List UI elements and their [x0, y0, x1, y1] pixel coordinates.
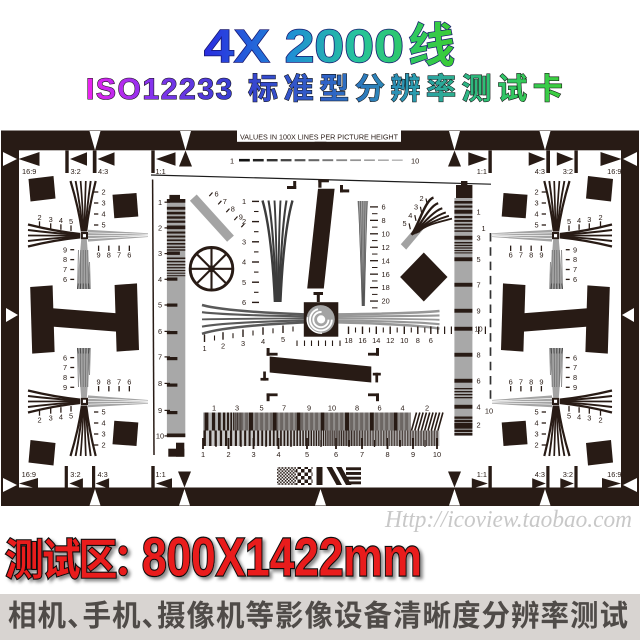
svg-text:9: 9 — [307, 403, 311, 412]
svg-text:5: 5 — [281, 335, 285, 344]
svg-text:4: 4 — [577, 216, 581, 225]
svg-text:4: 4 — [276, 450, 280, 459]
svg-text:4: 4 — [261, 337, 265, 346]
svg-text:2: 2 — [101, 188, 105, 197]
svg-text:10: 10 — [485, 407, 493, 416]
svg-text:5: 5 — [101, 408, 105, 417]
svg-text:1: 1 — [476, 208, 480, 217]
svg-text:10: 10 — [411, 156, 419, 165]
svg-text:12: 12 — [386, 336, 394, 345]
svg-text:9: 9 — [97, 378, 101, 387]
svg-text:2: 2 — [37, 213, 41, 222]
svg-text:7: 7 — [223, 197, 227, 206]
svg-text:18: 18 — [382, 283, 390, 292]
svg-text:8: 8 — [382, 216, 386, 225]
svg-text:8: 8 — [107, 378, 111, 387]
svg-text:4:3: 4:3 — [98, 470, 108, 479]
svg-text:20: 20 — [382, 297, 390, 306]
svg-text:6: 6 — [63, 353, 67, 362]
svg-text:3: 3 — [534, 430, 538, 439]
svg-text:4: 4 — [158, 275, 162, 284]
svg-text:8: 8 — [416, 336, 420, 345]
svg-text:1: 1 — [158, 198, 162, 207]
svg-text:3: 3 — [587, 215, 591, 224]
svg-text:6: 6 — [214, 189, 218, 198]
svg-text:3: 3 — [242, 237, 246, 246]
svg-text:1:1: 1:1 — [477, 167, 487, 176]
svg-text:4: 4 — [400, 403, 404, 412]
svg-text:14: 14 — [372, 336, 380, 345]
svg-text:16:9: 16:9 — [607, 470, 621, 479]
svg-text:8: 8 — [529, 378, 533, 387]
svg-text:2: 2 — [101, 441, 105, 450]
svg-text:10: 10 — [400, 336, 408, 345]
svg-text:1: 1 — [481, 224, 485, 233]
svg-text:4: 4 — [59, 216, 63, 225]
svg-text:16: 16 — [358, 336, 366, 345]
svg-text:16:9: 16:9 — [22, 167, 36, 176]
svg-text:10: 10 — [328, 403, 336, 412]
svg-text:1: 1 — [242, 197, 246, 206]
svg-text:16:9: 16:9 — [607, 167, 621, 176]
svg-text:2: 2 — [534, 441, 538, 450]
svg-text:8: 8 — [385, 450, 389, 459]
svg-text:12: 12 — [382, 243, 390, 252]
svg-text:2: 2 — [37, 416, 41, 425]
svg-text:6: 6 — [573, 275, 577, 284]
svg-text:8: 8 — [573, 373, 577, 382]
svg-text:3: 3 — [476, 234, 480, 243]
svg-text:3: 3 — [534, 199, 538, 208]
svg-text:10: 10 — [156, 432, 164, 441]
svg-text:4: 4 — [534, 210, 538, 219]
svg-text:7: 7 — [519, 251, 523, 260]
svg-text:1: 1 — [201, 450, 205, 459]
svg-text:9: 9 — [573, 245, 577, 254]
svg-text:5: 5 — [69, 411, 73, 420]
svg-text:5: 5 — [101, 221, 105, 230]
svg-text:4:3: 4:3 — [535, 470, 545, 479]
svg-text:3: 3 — [158, 249, 162, 258]
svg-text:4: 4 — [101, 419, 105, 428]
svg-text:8: 8 — [63, 255, 67, 264]
svg-text:7: 7 — [519, 378, 523, 387]
svg-text:4: 4 — [101, 210, 105, 219]
svg-text:5: 5 — [476, 255, 480, 264]
svg-text:6: 6 — [127, 251, 131, 260]
svg-text:7: 7 — [282, 403, 286, 412]
svg-text:16:9: 16:9 — [22, 470, 36, 479]
svg-text:4: 4 — [408, 211, 412, 220]
svg-text:5: 5 — [567, 217, 571, 226]
svg-text:3: 3 — [101, 430, 105, 439]
svg-text:6: 6 — [509, 378, 513, 387]
svg-text:8: 8 — [529, 251, 533, 260]
svg-text:2: 2 — [476, 421, 480, 430]
svg-text:7: 7 — [360, 450, 364, 459]
svg-text:2: 2 — [226, 450, 230, 459]
svg-text:8: 8 — [231, 205, 235, 214]
svg-text:5: 5 — [403, 219, 407, 228]
svg-text:9: 9 — [63, 245, 67, 254]
svg-text:6: 6 — [242, 298, 246, 307]
svg-text:5: 5 — [305, 450, 309, 459]
svg-text:2: 2 — [598, 416, 602, 425]
svg-text:7: 7 — [117, 251, 121, 260]
svg-text:1: 1 — [212, 403, 216, 412]
svg-text:4: 4 — [534, 419, 538, 428]
svg-text:6: 6 — [127, 378, 131, 387]
svg-text:3:2: 3:2 — [71, 167, 81, 176]
svg-text:2: 2 — [221, 342, 225, 351]
svg-text:9: 9 — [539, 251, 543, 260]
svg-text:9: 9 — [97, 251, 101, 260]
svg-text:3: 3 — [49, 414, 53, 423]
svg-text:4X 2000: 4X 2000 — [204, 20, 404, 72]
svg-text:2: 2 — [598, 213, 602, 222]
svg-text:4: 4 — [242, 258, 246, 267]
svg-text:7: 7 — [476, 281, 480, 290]
svg-text:4: 4 — [476, 403, 480, 412]
svg-text:8: 8 — [476, 351, 480, 360]
svg-text:6: 6 — [63, 275, 67, 284]
svg-text:5: 5 — [534, 408, 538, 417]
svg-text:18: 18 — [344, 336, 352, 345]
svg-text:7: 7 — [158, 353, 162, 362]
svg-text:9: 9 — [573, 383, 577, 392]
svg-text:5: 5 — [69, 217, 73, 226]
svg-text:16: 16 — [382, 270, 390, 279]
svg-text:1:1: 1:1 — [477, 470, 487, 479]
svg-text:9: 9 — [411, 450, 415, 459]
svg-text:5: 5 — [567, 411, 571, 420]
svg-text:8: 8 — [107, 251, 111, 260]
svg-text:9: 9 — [63, 383, 67, 392]
svg-text:6: 6 — [509, 251, 513, 260]
svg-text:4:3: 4:3 — [535, 167, 545, 176]
svg-text:7: 7 — [63, 363, 67, 372]
svg-text:3: 3 — [101, 199, 105, 208]
svg-text:3:2: 3:2 — [563, 167, 573, 176]
svg-text:800X1422mm: 800X1422mm — [142, 528, 422, 588]
svg-text:3: 3 — [241, 339, 245, 348]
svg-text:8: 8 — [158, 379, 162, 388]
svg-text:3: 3 — [251, 450, 255, 459]
svg-text:6: 6 — [377, 403, 381, 412]
svg-text:7: 7 — [573, 363, 577, 372]
svg-text:8: 8 — [355, 403, 359, 412]
svg-text:3: 3 — [49, 215, 53, 224]
svg-text:1:1: 1:1 — [156, 470, 166, 479]
svg-text:10: 10 — [433, 450, 441, 459]
svg-text:2: 2 — [419, 194, 423, 203]
svg-text:ISO12233: ISO12233 — [86, 73, 234, 106]
svg-text:2: 2 — [158, 224, 162, 233]
svg-text:7: 7 — [117, 378, 121, 387]
svg-text:14: 14 — [382, 256, 390, 265]
svg-text:VALUES IN 100X LINES PER PICTU: VALUES IN 100X LINES PER PICTURE HEIGHT — [240, 133, 398, 142]
svg-text:1: 1 — [202, 344, 206, 353]
svg-text:9: 9 — [539, 378, 543, 387]
svg-text:6: 6 — [573, 353, 577, 362]
svg-text:8: 8 — [573, 255, 577, 264]
svg-text:9: 9 — [476, 307, 480, 316]
svg-text:3: 3 — [235, 403, 239, 412]
svg-text:6: 6 — [429, 336, 433, 345]
svg-text:5: 5 — [534, 221, 538, 230]
svg-text:7: 7 — [573, 265, 577, 274]
svg-text:3: 3 — [587, 414, 591, 423]
svg-text:9: 9 — [158, 406, 162, 415]
svg-text:3:2: 3:2 — [70, 470, 80, 479]
svg-text:5: 5 — [242, 278, 246, 287]
svg-text:7: 7 — [63, 265, 67, 274]
svg-text:6: 6 — [158, 327, 162, 336]
svg-text:9: 9 — [239, 213, 243, 222]
svg-text:3:2: 3:2 — [563, 470, 573, 479]
svg-text:10: 10 — [474, 325, 482, 334]
svg-text:6: 6 — [476, 377, 480, 386]
svg-text:10: 10 — [382, 229, 390, 238]
svg-text:6: 6 — [382, 203, 386, 212]
svg-text:4:3: 4:3 — [98, 167, 108, 176]
svg-text:5: 5 — [158, 301, 162, 310]
svg-text:4: 4 — [59, 413, 63, 422]
svg-text:3: 3 — [414, 203, 418, 212]
svg-text:2: 2 — [425, 403, 429, 412]
svg-text:6: 6 — [334, 450, 338, 459]
svg-text:2: 2 — [534, 188, 538, 197]
svg-text:5: 5 — [259, 403, 263, 412]
svg-text:4: 4 — [577, 413, 581, 422]
svg-text:1: 1 — [230, 156, 234, 165]
svg-text:8: 8 — [63, 373, 67, 382]
